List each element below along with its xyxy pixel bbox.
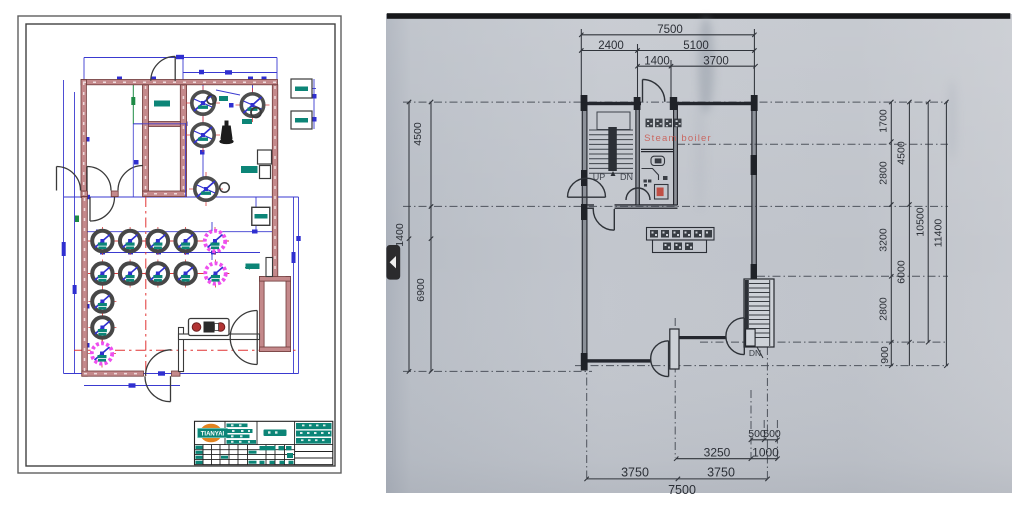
svg-text:6900: 6900 [415,278,427,302]
svg-text:3200: 3200 [878,228,890,252]
svg-text:1000: 1000 [752,446,779,460]
svg-text:2800: 2800 [878,297,890,321]
svg-text:6000: 6000 [896,260,908,284]
svg-text:500: 500 [763,428,781,440]
svg-text:7500: 7500 [668,483,696,497]
svg-text:DN: DN [749,348,761,358]
svg-text:5100: 5100 [683,40,709,52]
svg-text:3750: 3750 [707,466,735,480]
svg-text:10500: 10500 [915,207,927,236]
svg-text:4500: 4500 [896,141,908,165]
svg-text:TIANYAI: TIANYAI [201,432,225,438]
svg-text:Steam boiler: Steam boiler [644,133,712,144]
svg-text:3250: 3250 [704,446,731,460]
svg-text:4500: 4500 [412,122,424,146]
svg-text:3750: 3750 [621,466,649,480]
svg-text:900: 900 [879,346,891,364]
svg-text:DN: DN [620,172,633,182]
svg-text:1700: 1700 [878,109,890,133]
svg-text:UP: UP [593,172,606,182]
svg-text:2800: 2800 [878,161,890,185]
svg-text:1400: 1400 [394,223,406,247]
svg-text:2400: 2400 [598,40,624,52]
svg-text:7500: 7500 [657,24,683,36]
svg-text:3700: 3700 [703,56,729,68]
svg-text:1400: 1400 [644,56,670,68]
svg-text:11400: 11400 [933,219,945,248]
